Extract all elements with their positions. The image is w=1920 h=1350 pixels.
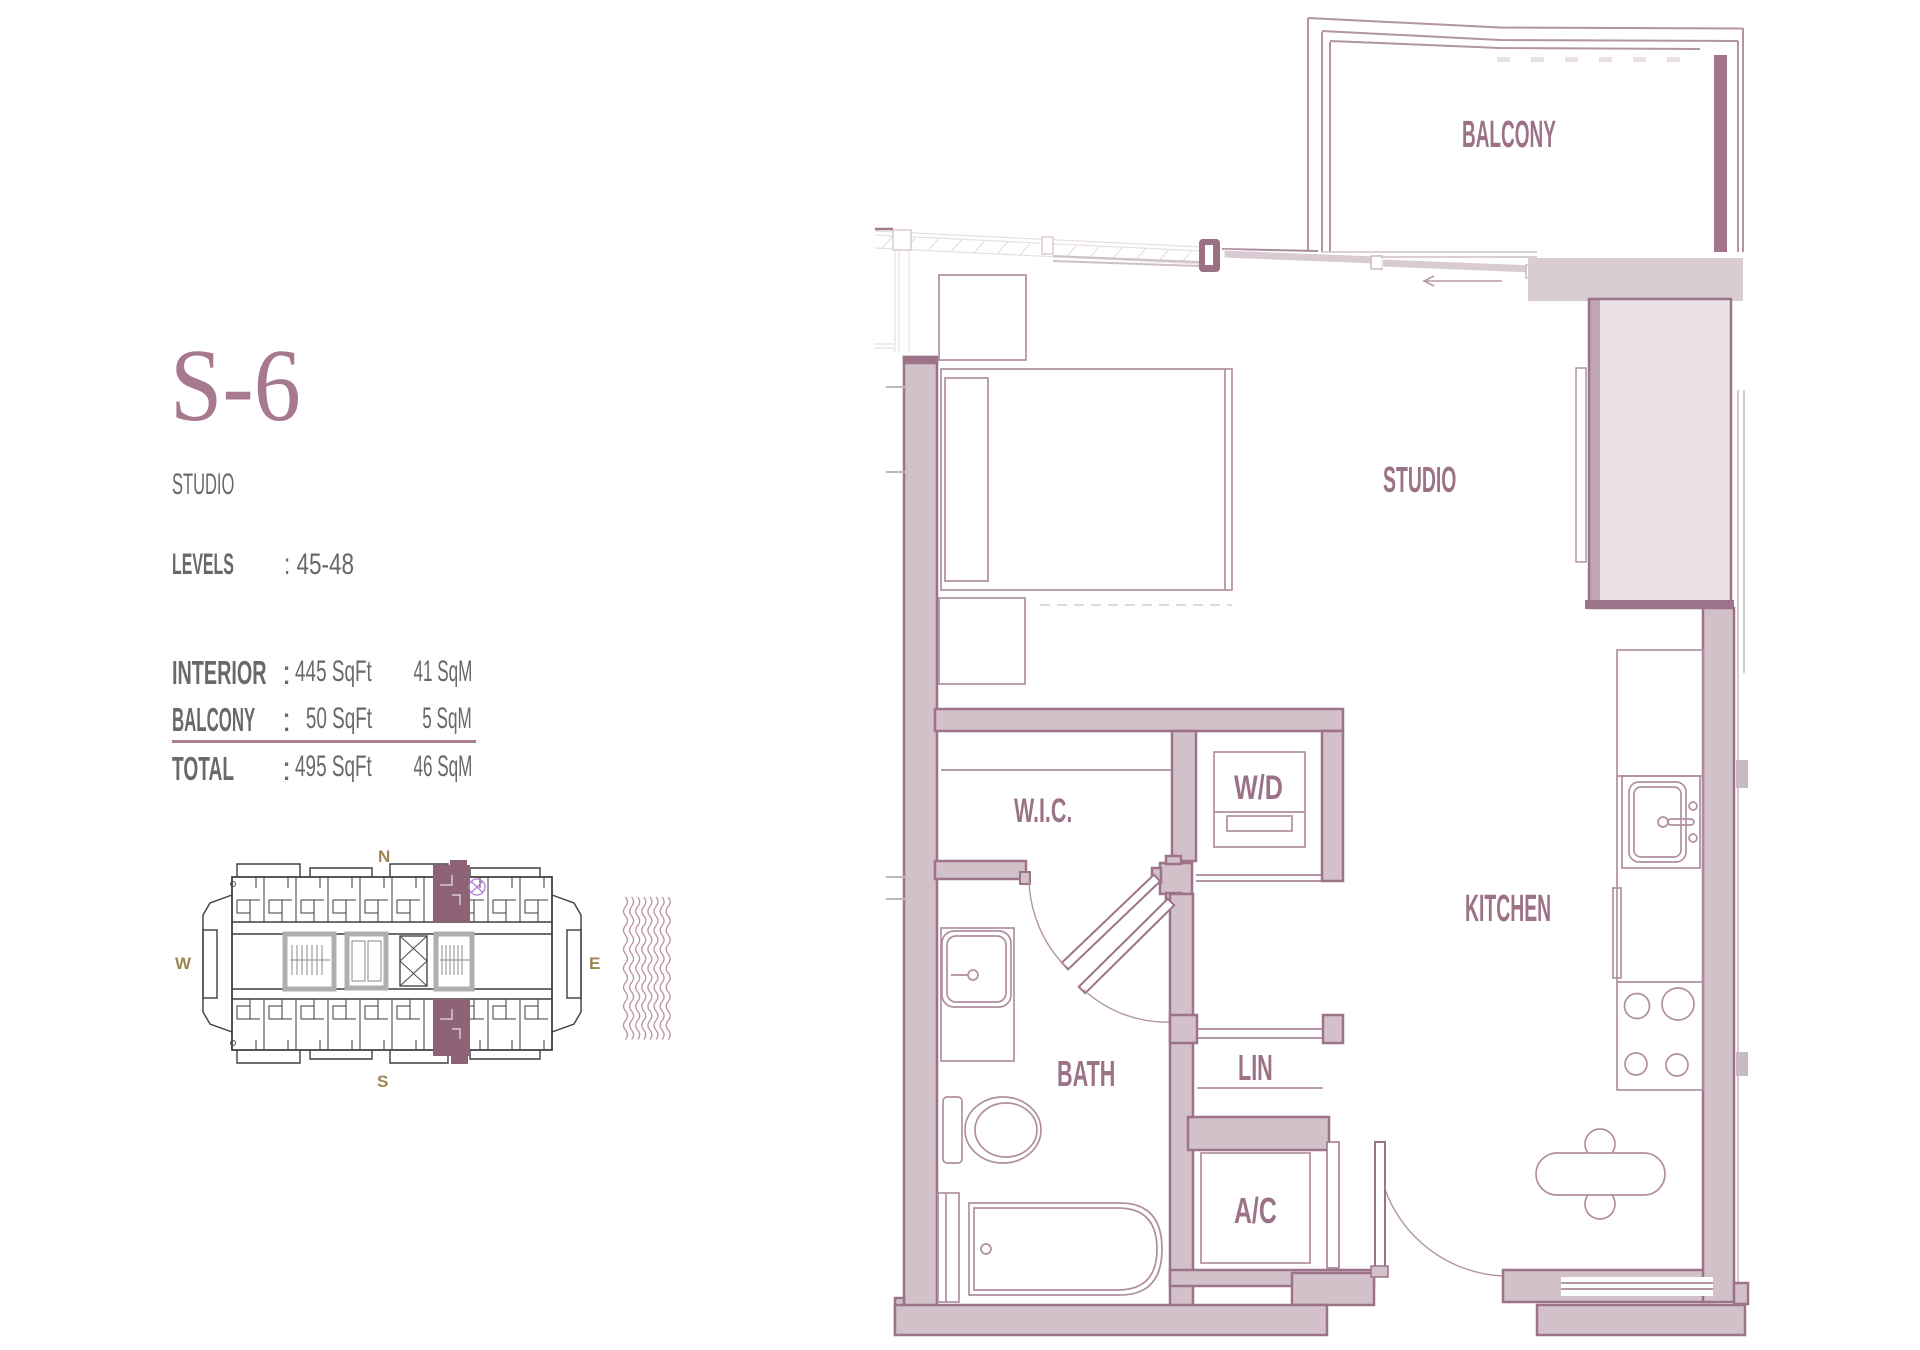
svg-text:LIN: LIN	[1238, 1048, 1273, 1088]
svg-text:KITCHEN: KITCHEN	[1465, 888, 1551, 930]
svg-text:E: E	[589, 954, 600, 973]
svg-text:W: W	[175, 954, 192, 973]
svg-text:BALCONY: BALCONY	[1462, 114, 1556, 156]
svg-text:S: S	[377, 1072, 388, 1091]
svg-text:A/C: A/C	[1234, 1190, 1277, 1231]
svg-text:W.I.C.: W.I.C.	[1014, 792, 1072, 830]
svg-text:N: N	[378, 847, 390, 866]
svg-text:STUDIO: STUDIO	[1383, 461, 1456, 501]
svg-text:BATH: BATH	[1057, 1054, 1115, 1094]
svg-text:W/D: W/D	[1234, 769, 1283, 807]
